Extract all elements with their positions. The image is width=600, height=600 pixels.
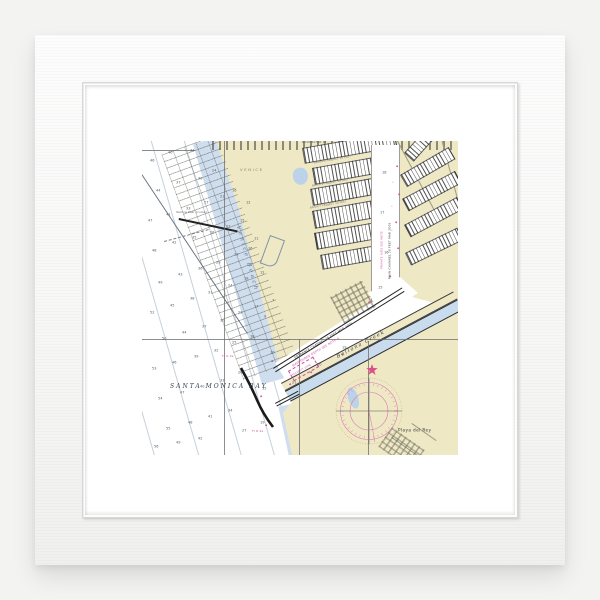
label-light-green: Fl G 4s: [222, 355, 234, 358]
label-venice-town: VENICE: [240, 168, 264, 172]
label-main-channel-note: MAIN CHANNEL 20 FEET MAR 2005: [389, 222, 392, 279]
label-venice-pier: Venice Pier (ruins): [176, 211, 207, 214]
label-santa-monica-bay: SANTA MONICA BAY: [170, 383, 268, 389]
nautical-chart-print: 4640344437302447413327211648423528221549…: [142, 141, 458, 455]
label-light-red: Fl R 4s: [252, 430, 263, 433]
labels-layer: SANTA MONICA BAYVenice BeachBallona Cree…: [142, 141, 458, 455]
label-basin-d: BASIN D PROJECT 10 FEET: [314, 155, 351, 164]
label-ballona-creek: Ballona Creek: [336, 330, 386, 360]
label-playa-del-rey: Playa del Rey: [398, 428, 431, 432]
label-basin-e: BASIN E PROJECT 10 FEET: [312, 179, 349, 188]
label-washington-st: WASHINGTON ST: [302, 142, 326, 144]
label-private-aids-note: PRIVATE AIDS SEE NOTE: [381, 231, 384, 269]
label-basin-f: BASIN F PROJECT 10 FEET: [310, 201, 347, 210]
label-venice-beach: Venice Beach: [236, 225, 260, 292]
